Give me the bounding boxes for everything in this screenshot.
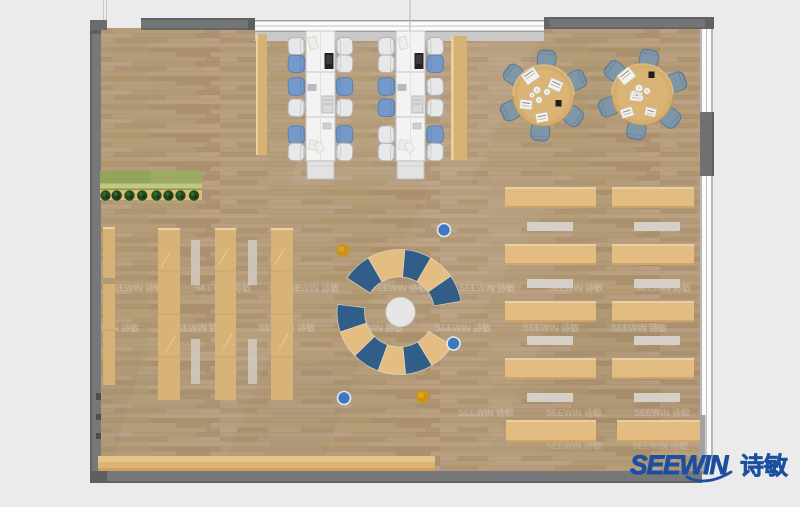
svg-text:SEEWIN 诗敏: SEEWIN 诗敏 (435, 322, 492, 333)
svg-text:SEEWIN 诗敏: SEEWIN 诗敏 (459, 282, 516, 293)
svg-text:SEEWIN 诗敏: SEEWIN 诗敏 (546, 407, 603, 418)
svg-text:SEEWIN 诗敏: SEEWIN 诗敏 (523, 322, 580, 333)
svg-text:SEEWIN: SEEWIN (630, 450, 729, 480)
svg-text:SEEWIN 诗敏: SEEWIN 诗敏 (107, 282, 164, 293)
svg-text:SEEWIN 诗敏: SEEWIN 诗敏 (634, 407, 691, 418)
svg-text:诗敏: 诗敏 (740, 453, 788, 480)
svg-text:SEEWIN 诗敏: SEEWIN 诗敏 (611, 322, 668, 333)
svg-text:SEEWIN 诗敏: SEEWIN 诗敏 (458, 407, 515, 418)
